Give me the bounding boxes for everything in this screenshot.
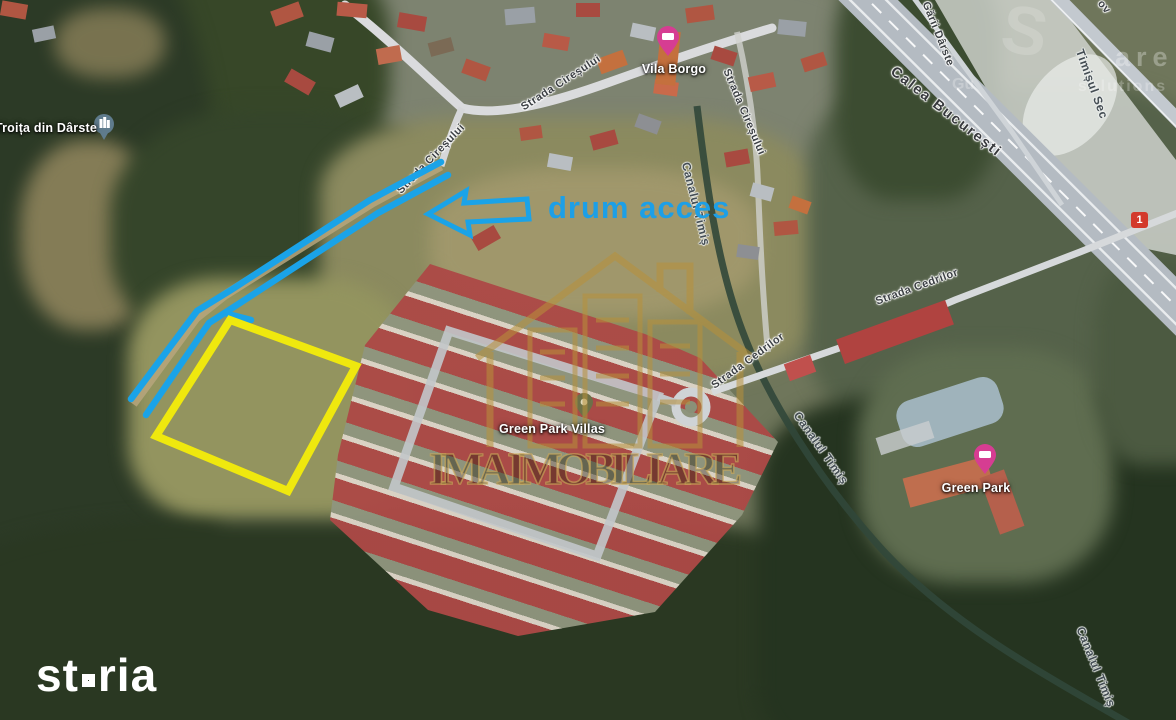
terrain-greenpark-grounds bbox=[858, 348, 1113, 583]
poi-label-troita: Troița din Dârste bbox=[0, 121, 97, 135]
poi-label-vila-borgo: Vila Borgo bbox=[642, 62, 706, 76]
terrain-clearing-topleft bbox=[55, 8, 165, 78]
satellite-map-image: IMA IMOBILIARE S are Gu solutions Troița… bbox=[0, 0, 1176, 720]
poi-label-green-park-villas: Green Park Villas bbox=[499, 422, 605, 436]
watermark-fragment-s: S bbox=[996, 0, 1054, 73]
storia-logo-text-left: st bbox=[36, 648, 79, 702]
watermark-fragment-gu: Gu bbox=[952, 76, 974, 94]
poi-label-green-park: Green Park bbox=[942, 481, 1011, 495]
street-label-ov-fragment: ov bbox=[1095, 0, 1113, 16]
terrain-scrub-right-edge bbox=[1095, 255, 1176, 465]
access-road-annotation-text: drum acces bbox=[548, 190, 730, 226]
road-number-badge: 1 bbox=[1131, 212, 1148, 228]
storia-logo-square-o bbox=[82, 674, 95, 687]
storia-logo-text-right: ria bbox=[98, 648, 157, 702]
storia-logo: stria bbox=[36, 648, 157, 702]
watermark-fragment-are: are bbox=[1115, 42, 1174, 73]
